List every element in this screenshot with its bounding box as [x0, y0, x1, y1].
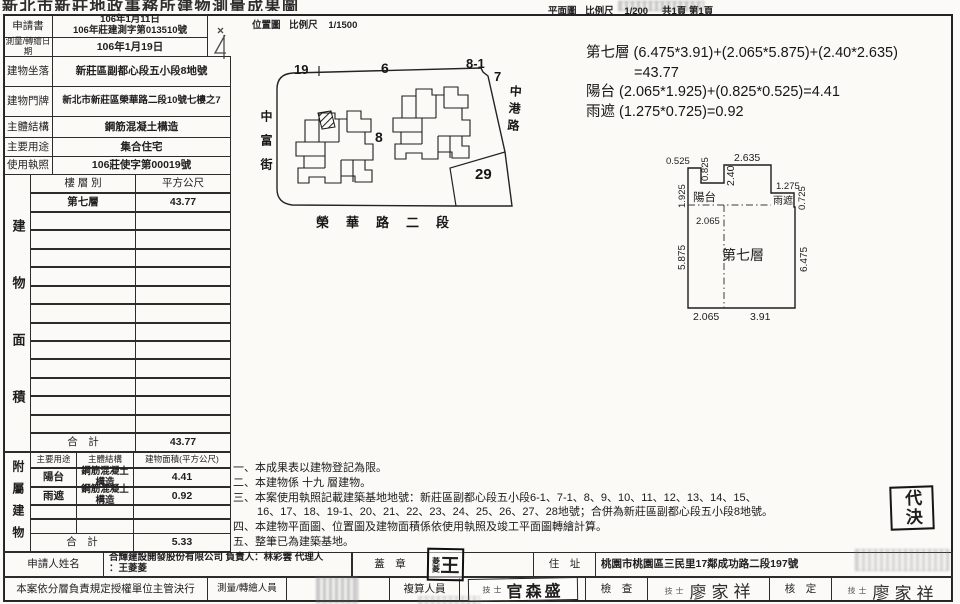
empty-row-cell — [30, 323, 136, 341]
empty-row-cell — [135, 267, 231, 285]
annex-table-side-strip: 附屬建物 — [3, 452, 31, 552]
empty-row-cell — [30, 249, 136, 267]
info-value-survey-date: 106年1月19日 — [52, 37, 208, 57]
empty-row-cell — [135, 341, 231, 359]
info-value-structure: 鋼筋混凝土構造 — [52, 116, 231, 138]
empty-row-cell — [135, 286, 231, 304]
balcony-label: 陽台 — [693, 190, 716, 204]
empty-row-cell — [30, 304, 136, 322]
info-label-door-plate: 建物門牌 — [3, 86, 53, 117]
street-label-south: 榮華路二段 — [316, 212, 466, 231]
site-map-scale-value: 1/1500 — [328, 20, 357, 31]
building-footprint-west — [296, 111, 373, 183]
info-value-application: 106年1月11日 106年莊建測字第013510號 — [52, 14, 208, 38]
floor-row-name: 第七層 — [30, 193, 136, 212]
annex-col-use: 主要用途 — [30, 452, 77, 468]
parcel-label-8-1: 8-1 — [466, 56, 485, 71]
seal-big-char: 王 — [440, 551, 459, 578]
bottom-handwriting-smudge — [418, 596, 480, 604]
scanned-survey-document: 新北市新莊地政事務所建物測量成果圖 平面圖 比例尺 1/200 共1頁 第1頁 … — [0, 0, 960, 604]
annex-row-structure: 鋼筋混凝土構造 — [76, 487, 134, 505]
notes-block: 一、本成果表以建物登記為限。 二、本建物係 十九 層建物。 三、本案使用執照記載… — [233, 461, 949, 550]
applicant-name-label: 申請人姓名 — [3, 552, 104, 577]
empty-row-cell — [30, 359, 136, 377]
empty-row-cell — [30, 415, 136, 433]
empty-row-cell — [76, 505, 134, 519]
dim-0525: 0.525 — [666, 156, 690, 167]
calc-line-total: =43.77 — [586, 64, 898, 84]
info-label-location: 建物坐落 — [3, 56, 53, 87]
empty-row-cell — [135, 396, 231, 414]
applicant-name-value: 合輝建設開發股份有限公司 負責人：林彩雲 代理人 ：王菱菱 — [103, 552, 352, 577]
address-label: 住 址 — [533, 552, 596, 577]
dim-5875: 5.875 — [677, 245, 688, 270]
empty-row-cell — [135, 323, 231, 341]
empty-row-cell — [135, 230, 231, 248]
empty-row-cell — [30, 519, 77, 534]
site-map-title: 位置圖 — [252, 20, 281, 31]
note-3: 三、本案使用執照記載建築基地地號：新莊區副都心段五小段6-1、7-1、8、9、1… — [233, 491, 949, 506]
empty-row-cell — [30, 267, 136, 285]
floor-total-label: 合 計 — [30, 433, 136, 452]
calc-line-canopy: 雨遮 (1.275*0.725)=0.92 — [586, 103, 898, 123]
annex-row-area: 4.41 — [133, 468, 231, 487]
dim-0825: 0.825 — [700, 157, 711, 181]
info-value-license: 106莊使字第00019號 — [52, 156, 231, 175]
empty-row-cell — [135, 378, 231, 396]
building-footprint-east — [393, 87, 470, 159]
dim-2065-upper: 2.065 — [696, 216, 720, 227]
approve-stamp-title: 技士 — [847, 585, 869, 596]
info-value-door-plate: 新北市新莊區榮華路二段10號七樓之7 — [52, 86, 231, 117]
applicant-name-seal: 菱菱 王 — [427, 548, 465, 582]
parcel-label-19: 19 — [294, 62, 308, 77]
doc-title-clipped-wrap: 新北市新莊地政事務所建物測量成果圖 — [2, 0, 362, 11]
seal-label: 蓋 章 — [352, 552, 428, 577]
applicant-line2: ：王菱菱 — [109, 564, 147, 575]
authority-note: 本案依分層負責規定授權單位主管決行 — [3, 577, 208, 602]
floor-plan-drawing: 0.525 0.825 2.635 2.40 1.275 雨遮 0.725 陽台… — [660, 150, 820, 322]
empty-row-cell — [30, 505, 77, 519]
info-label-application: 申請書 — [3, 14, 53, 38]
dim-2065-bottom: 2.065 — [693, 311, 719, 323]
street-label-west: 中富街 — [258, 110, 275, 182]
empty-row-cell — [133, 519, 231, 534]
floor-total-value: 43.77 — [135, 433, 231, 452]
floor-table-side-label: 建物面積 — [10, 219, 25, 447]
parcel-label-6: 6 — [381, 60, 389, 76]
checker-stamp: 技士 官森盛 — [468, 577, 578, 602]
dim-0725: 0.725 — [797, 186, 808, 210]
canopy-label: 雨遮 — [773, 194, 793, 207]
annex-row-area: 0.92 — [133, 487, 231, 505]
info-label-use: 主要用途 — [3, 137, 53, 157]
inspect-stamp: 技士 廖家祥 — [650, 577, 770, 604]
approve-label: 核 定 — [769, 577, 832, 602]
calc-line-balcony: 陽台 (2.065*1.925)+(0.825*0.525)=4.41 — [586, 83, 898, 103]
floor-row-area: 43.77 — [135, 193, 231, 212]
inspect-stamp-title: 技士 — [664, 585, 686, 596]
approve-stamp-name: 廖家祥 — [872, 578, 938, 604]
empty-row-cell — [30, 230, 136, 248]
approve-stamp: 技士 廖家祥 — [833, 578, 953, 604]
empty-row-cell — [30, 341, 136, 359]
delegate-decision-stamp: 代決 — [889, 485, 935, 531]
empty-row-cell — [76, 519, 134, 534]
empty-row-cell — [30, 212, 136, 230]
site-map-drawing — [238, 55, 538, 230]
annex-row-use: 陽台 — [30, 468, 77, 487]
area-calculation-block: 第七層 (6.475*3.91)+(2.065*5.875)+(2.40*2.6… — [586, 44, 898, 122]
checker-stamp-title: 技士 — [482, 584, 504, 595]
parcel-label-8: 8 — [375, 129, 383, 145]
room-label: 第七層 — [722, 247, 764, 263]
parcel-label-7: 7 — [494, 69, 501, 84]
site-map-scale-header: 位置圖 比例尺 1/1500 — [252, 17, 357, 31]
note-5: 五、整筆已為建築基地。 — [233, 535, 949, 550]
empty-row-cell — [133, 505, 231, 519]
calc-line-main-floor: 第七層 (6.475*3.91)+(2.065*5.875)+(2.40*2.6… — [586, 44, 898, 64]
note-1: 一、本成果表以建物登記為限。 — [233, 461, 949, 476]
inspect-label: 檢 查 — [585, 577, 648, 602]
surveyor-label: 測量/轉繪人員 — [207, 577, 287, 602]
empty-row-cell — [30, 396, 136, 414]
checker-stamp-name: 官森盛 — [506, 577, 563, 602]
info-label-survey-date: 測量/轉繪日期 — [3, 37, 53, 57]
annex-col-area: 建物面積(平方公尺) — [133, 452, 231, 468]
parcel-boundary — [277, 68, 512, 206]
dim-1925: 1.925 — [677, 184, 688, 208]
empty-row-cell — [135, 304, 231, 322]
dim-6475: 6.475 — [799, 247, 810, 272]
site-map-scale-label: 比例尺 — [289, 20, 318, 31]
floor-table-side-strip: 建物面積 — [3, 174, 31, 452]
empty-row-cell — [135, 249, 231, 267]
note-4: 四、本建物平面圖、位置圖及建物面積係依使用執照及竣工平面圖轉繪計算。 — [233, 520, 949, 535]
street-label-east: 中港路 — [504, 84, 525, 136]
note-2: 二、本建物係 十九 層建物。 — [233, 476, 949, 491]
info-value-location: 新莊區副都心段五小段8地號 — [52, 56, 231, 87]
application-number: 106年莊建測字第013510號 — [73, 26, 187, 37]
info-label-license: 使用執照 — [3, 156, 53, 175]
doc-title: 新北市新莊地政事務所建物測量成果圖 — [2, 0, 362, 11]
inspect-stamp-name: 廖家祥 — [689, 577, 756, 603]
dim-2635: 2.635 — [734, 152, 760, 164]
empty-row-cell — [135, 212, 231, 230]
dim-391: 3.91 — [750, 311, 771, 323]
empty-row-cell — [135, 359, 231, 377]
dim-240: 2.40 — [725, 165, 737, 186]
floor-col-header: 樓 層 別 — [30, 174, 136, 193]
surveyor-faint-stamp — [316, 577, 358, 603]
empty-row-cell — [30, 286, 136, 304]
address-faint-stamp — [855, 549, 949, 571]
subject-unit-hatched — [318, 111, 335, 129]
note-3-cont: 16、17、18、19-1、20、21、22、23、24、25、26、27、28… — [233, 505, 949, 520]
seal-small-chars: 菱菱 — [431, 556, 439, 572]
annex-table-side-label: 附屬建物 — [10, 460, 24, 548]
info-label-structure: 主體結構 — [3, 116, 53, 138]
annex-row-use: 雨遮 — [30, 487, 77, 505]
north-arrow-icon — [210, 26, 236, 60]
parcel-label-29: 29 — [475, 166, 492, 183]
info-value-use: 集合住宅 — [52, 137, 231, 157]
empty-row-cell — [30, 378, 136, 396]
area-col-header: 平方公尺 — [135, 174, 231, 193]
empty-row-cell — [135, 415, 231, 433]
annex-total-label: 合 計 — [30, 533, 134, 552]
annex-total-value: 5.33 — [133, 533, 231, 552]
